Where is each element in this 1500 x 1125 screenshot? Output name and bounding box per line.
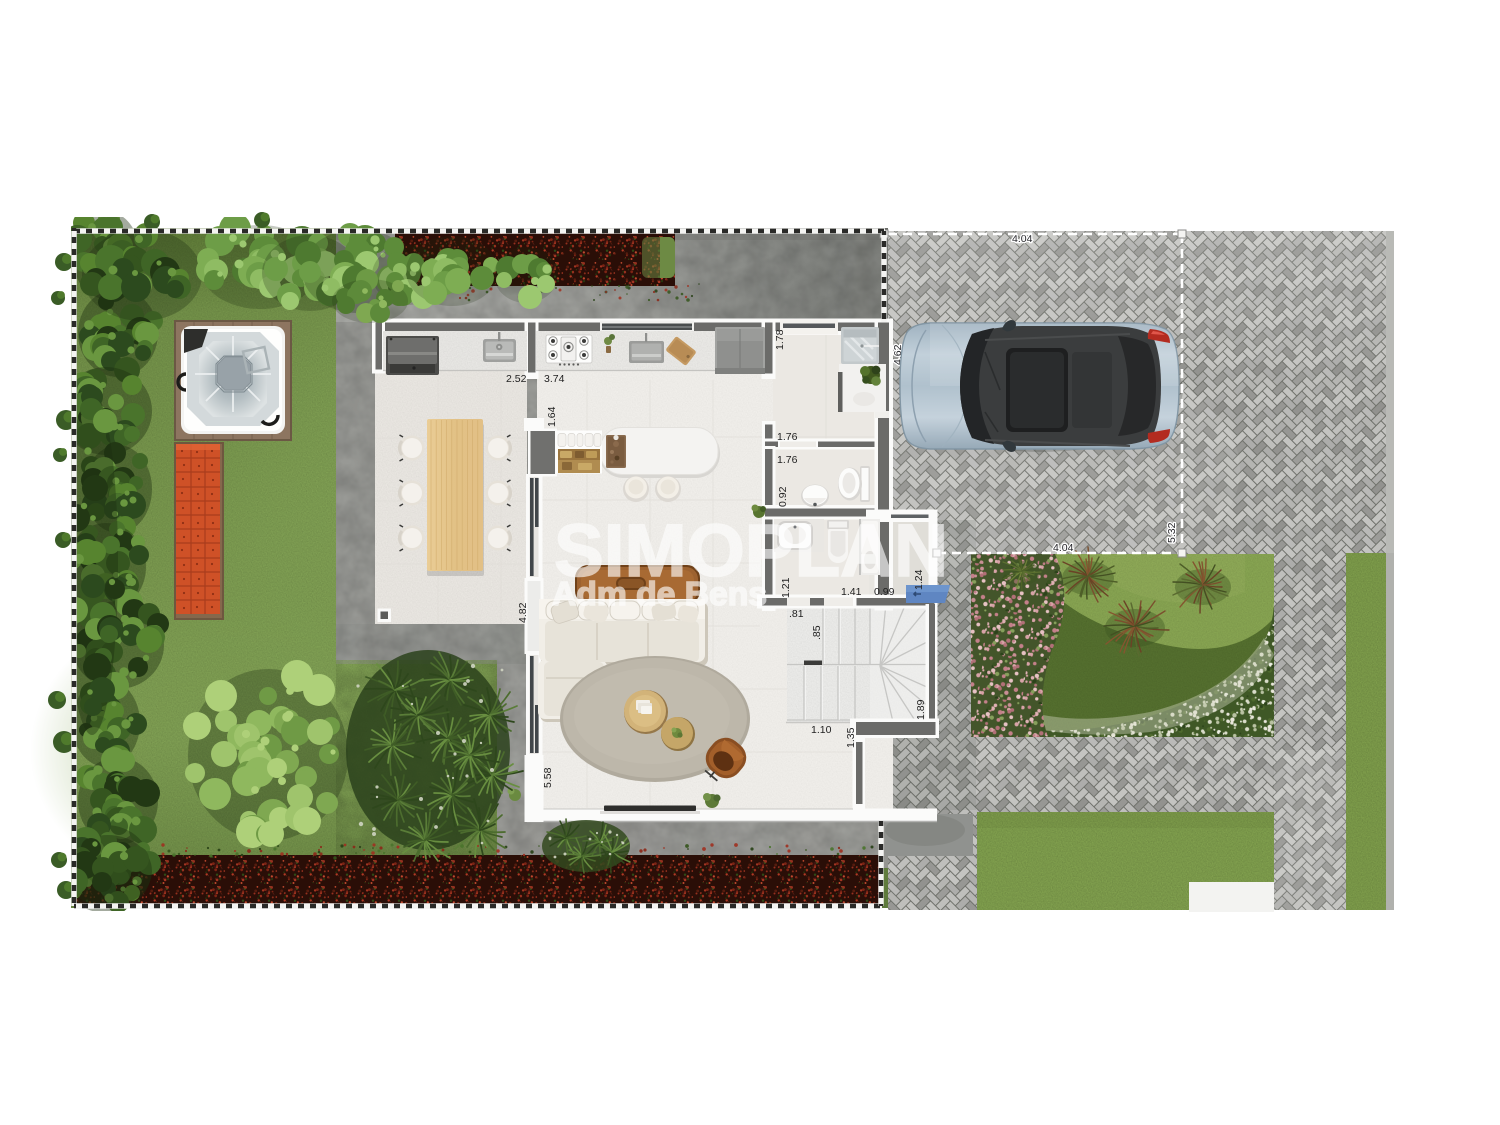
svg-text:1.35: 1.35 xyxy=(845,727,857,748)
svg-text:1.78: 1.78 xyxy=(774,329,786,350)
svg-text:3.74: 3.74 xyxy=(544,373,565,385)
svg-text:1.10: 1.10 xyxy=(811,724,832,736)
svg-text:1.89: 1.89 xyxy=(915,699,927,720)
svg-text:1.76: 1.76 xyxy=(777,431,798,443)
svg-text:Adm de Bens: Adm de Bens xyxy=(552,575,767,612)
svg-text:4.82: 4.82 xyxy=(517,602,529,623)
svg-text:2.52: 2.52 xyxy=(506,373,527,385)
svg-text:0.92: 0.92 xyxy=(777,486,789,507)
svg-text:5.58: 5.58 xyxy=(542,767,554,788)
svg-text:5.32: 5.32 xyxy=(1166,522,1178,543)
svg-text:1.64: 1.64 xyxy=(546,406,558,427)
svg-text:.85: .85 xyxy=(811,625,823,640)
svg-text:.81: .81 xyxy=(789,608,804,620)
svg-text:1.76: 1.76 xyxy=(777,454,798,466)
